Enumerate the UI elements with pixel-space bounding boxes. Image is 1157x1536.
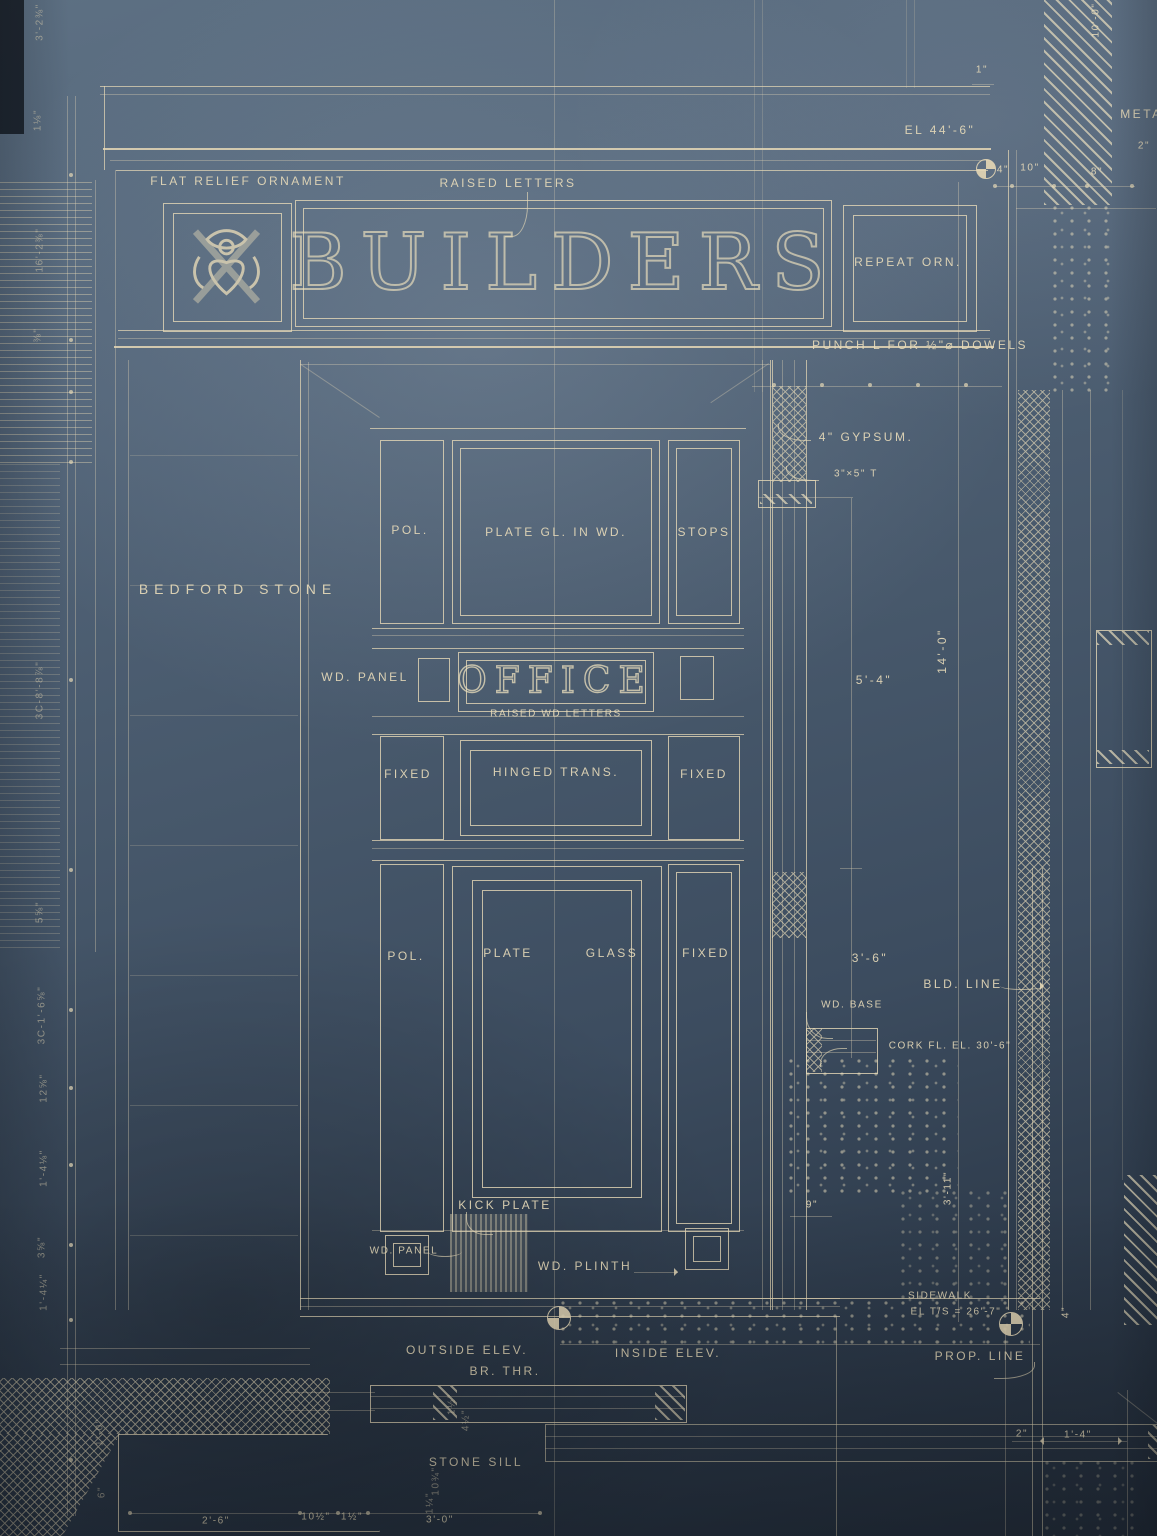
dim-tick	[69, 1086, 73, 1090]
margin-dim: 16'-2⅜"	[35, 227, 46, 272]
outside-elev-label: OUTSIDE ELEV.	[406, 1343, 528, 1357]
dim-tick	[69, 338, 73, 342]
dim-line	[995, 186, 1135, 187]
floor-bar-line	[545, 1448, 1157, 1449]
connector-line	[285, 1392, 375, 1393]
fixed-right-label: FIXED	[680, 767, 728, 781]
wd-panel-label: WD. PANEL	[321, 670, 409, 684]
kick-plate-label: KICK PLATE	[458, 1198, 551, 1212]
margin-dim: 3⅝"	[37, 1236, 48, 1258]
facade-return-line	[1008, 150, 1009, 1310]
dim-2in-bottom-label: 2"	[1016, 1429, 1028, 1440]
margin-dim: 5⅝"	[35, 901, 46, 923]
t3x5-label: 3"×5" T	[834, 469, 878, 480]
threshold-end-hatch	[655, 1386, 685, 1420]
dim-1h-rot-label: 1½"	[447, 1393, 458, 1415]
pol-upper-label: POL.	[391, 523, 428, 537]
dim-tick	[69, 1243, 73, 1247]
metal-label: METAL	[1120, 107, 1157, 121]
threshold-bar	[370, 1385, 687, 1423]
glass-line	[1090, 390, 1091, 1310]
wall-line	[95, 180, 96, 952]
cork-floor-label: CORK FL. EL. 30'-6"	[889, 1041, 1012, 1052]
fixed-pane	[380, 736, 444, 840]
office-sign-text: OFFICE	[457, 661, 653, 702]
plinth-square-inner	[693, 1236, 721, 1262]
dim-line-right-bottom	[1012, 1441, 1127, 1442]
side-light	[380, 864, 444, 1232]
builders-sign-text: BUILDERS	[289, 218, 838, 308]
margin-dim: 1⅛"	[33, 109, 44, 131]
sidewalk-datum-dot	[999, 1312, 1023, 1336]
stops-label: STOPS	[678, 525, 731, 539]
anchor-dot	[868, 383, 872, 387]
sidewalk-el-label: EL T/S = 26'-7"	[911, 1307, 1002, 1318]
stone-joint	[130, 715, 298, 716]
dim-tick	[69, 173, 73, 177]
sill-block-hatch	[760, 494, 812, 504]
floor-bar-end-hatch	[1148, 1425, 1157, 1459]
stone-joint	[130, 1235, 298, 1236]
gypsum-label: 4" GYPSUM.	[819, 430, 914, 444]
margin-dim: ⅜"	[33, 327, 44, 342]
stone-joint	[130, 455, 298, 456]
rail-line	[372, 848, 744, 849]
blocking-hatch	[772, 872, 806, 938]
punch-note-label: PUNCH L FOR ½"⌀ DOWELS	[812, 338, 1028, 352]
dim-tick	[336, 1511, 340, 1515]
dim-9in-label: 9"	[806, 1200, 818, 1211]
head-line	[300, 364, 770, 365]
threshold-line	[370, 1396, 685, 1397]
dim-tick	[69, 1008, 73, 1012]
dim-4-rot-label: 4"	[1061, 1306, 1072, 1318]
arrowhead	[1118, 1437, 1126, 1445]
dim-tick	[538, 1511, 542, 1515]
anchor-dot	[916, 383, 920, 387]
stone-joint	[130, 1105, 298, 1106]
hinged-transom-inner	[470, 750, 642, 826]
brick-course-texture	[0, 464, 60, 954]
pier-line	[115, 170, 116, 1310]
br-thr-label: BR. THR.	[469, 1364, 540, 1378]
stone-sill-label: STONE SILL	[429, 1455, 523, 1469]
rail-line	[372, 734, 744, 735]
dim-tick	[366, 1511, 370, 1515]
fixed-left-label: FIXED	[384, 767, 432, 781]
anchor-dot	[964, 383, 968, 387]
wd-panel-bottom-label: WD. PANEL	[370, 1246, 439, 1257]
wood-panel-square	[680, 656, 714, 700]
masonry-stipple	[1052, 205, 1114, 395]
concrete-stipple	[900, 1190, 1020, 1302]
rail-line	[372, 860, 744, 861]
anchor-dot	[772, 383, 776, 387]
cornice-line	[110, 160, 990, 161]
brick-course-texture	[0, 182, 92, 464]
wall-line	[914, 0, 915, 88]
dim-14-0-label: 14'-0"	[935, 628, 949, 674]
elevation-datum-dot	[976, 159, 996, 179]
dim-tick	[1052, 184, 1056, 188]
side-light-inner	[676, 872, 732, 1224]
wd-plinth-label: WD. PLINTH	[538, 1259, 632, 1273]
fold-crease	[754, 0, 755, 392]
dim-line-14-0	[958, 182, 959, 1322]
door-leaf-inner	[482, 890, 632, 1188]
dim-5-4-label: 5'-4"	[856, 673, 892, 687]
concrete-stipple	[788, 1058, 958, 1198]
fill-stipple	[1044, 1460, 1144, 1536]
hinged-trans-label: HINGED TRANS.	[493, 765, 619, 779]
raised-wd-letters-label: RAISED WD LETTERS	[490, 709, 622, 720]
cornice-line	[100, 94, 990, 95]
dim-line-bottom	[130, 1513, 540, 1514]
sill-line	[60, 1364, 310, 1365]
dim-tick	[128, 1511, 132, 1515]
mullion-detail-hatch	[1097, 631, 1149, 645]
dim-tick	[69, 1318, 73, 1322]
plate-gl-label: PLATE GL. IN WD.	[485, 525, 627, 539]
inside-elev-label: INSIDE ELEV.	[615, 1346, 721, 1360]
rail-line	[372, 648, 744, 649]
jamb-line	[300, 360, 301, 1310]
curb-hatch	[1124, 1175, 1157, 1325]
dim-2in-label: 2"	[1138, 141, 1150, 152]
dim-line	[67, 96, 68, 1516]
glass-label: GLASS	[586, 946, 639, 960]
dim-1in-label: 1"	[976, 65, 988, 76]
dim-line-5-4	[851, 498, 852, 1058]
sheet-edge-shadow	[0, 0, 24, 134]
dim-tick	[69, 460, 73, 464]
sidewalk-label: SIDEWALK	[908, 1291, 972, 1302]
head-line	[370, 428, 746, 429]
dim-9-line	[790, 1216, 832, 1217]
dim-3-6-label: 3'-6"	[852, 951, 888, 965]
arrowhead	[674, 1268, 682, 1276]
leader-line	[634, 1272, 678, 1273]
dim-6-rot-label: 6"	[97, 1486, 108, 1498]
mullion-detail	[1096, 630, 1152, 768]
dim-tick	[993, 184, 997, 188]
relief-ornament-motif	[178, 218, 275, 315]
dim-ext	[758, 497, 853, 498]
cornice-line	[100, 86, 990, 87]
dim-1-4-label: 1'-4"	[1064, 1430, 1092, 1441]
rail-line	[372, 840, 744, 841]
reveal-diagonal	[300, 364, 379, 418]
dim-tick	[1130, 184, 1134, 188]
sidewalk-line	[560, 1344, 1040, 1345]
foundation-hatch	[0, 1378, 330, 1434]
plate-label: PLATE	[483, 946, 533, 960]
wd-base-label: WD. BASE	[821, 1000, 883, 1011]
rail-line	[372, 1230, 744, 1231]
blueprint-sheet: FLAT RELIEF ORNAMENT RAISED LETTERS EL 4…	[0, 0, 1157, 1536]
dim-tick	[69, 390, 73, 394]
facade-return-line	[1016, 150, 1017, 1310]
pol-lower-label: POL.	[387, 949, 424, 963]
fixed-bottom-label: FIXED	[682, 946, 730, 960]
stone-joint	[130, 975, 298, 976]
dim-10in-label: 10"	[1020, 163, 1039, 174]
prop-line-leader	[994, 1362, 1035, 1379]
dim-10ft-label: 10'-0"	[1091, 2, 1102, 37]
section-line	[1016, 208, 1156, 209]
reveal-diagonal	[710, 363, 769, 403]
dim-4h-rot-label: 4½"	[461, 1409, 472, 1431]
dim-8in-label: 8"	[1091, 167, 1103, 178]
mullion-detail-hatch	[1097, 750, 1149, 764]
pier-line	[128, 360, 129, 1310]
arrowhead	[1036, 1437, 1044, 1445]
threshold-line	[370, 1408, 685, 1409]
margin-dim: 1'-4¼"	[39, 1273, 50, 1311]
bld-line-label: BLD. LINE	[923, 977, 1002, 991]
wall-crosshatch	[1018, 390, 1050, 1310]
cornice-line	[103, 148, 991, 150]
dim-tick	[69, 1163, 73, 1167]
dim-line	[75, 96, 76, 1516]
margin-dim: 3C-8'-8⅞"	[35, 661, 46, 720]
dim-tick	[1085, 184, 1089, 188]
dim-10h-label: 10½"	[301, 1512, 330, 1523]
dim-tick	[69, 868, 73, 872]
raised-letters-label: RAISED LETTERS	[439, 176, 576, 190]
rail-line	[372, 628, 744, 629]
elevation-divider	[836, 1316, 837, 1536]
slope-line	[1117, 1392, 1157, 1425]
el-44-6-label: EL 44'-6"	[905, 123, 976, 137]
dim-1-0-rot-label: 1'-0"	[95, 1418, 106, 1446]
anchor-dot	[820, 383, 824, 387]
stone-joint	[130, 845, 298, 846]
margin-dim: 3'-2⅜"	[35, 3, 46, 41]
dim-3-0-label: 3'-0"	[426, 1515, 454, 1526]
cornice-end	[104, 86, 105, 170]
margin-dim: 3C-1'-6⅝"	[37, 986, 48, 1045]
prop-line-label: PROP. LINE	[935, 1349, 1026, 1363]
connector-line	[285, 1410, 375, 1411]
glass-line	[1122, 390, 1123, 1180]
cornice-line	[116, 170, 988, 171]
bedford-stone-label: BEDFORD STONE	[139, 581, 337, 597]
dim-1h-label: 1½"	[341, 1512, 363, 1523]
dim-3-11-label: 3'-11"	[943, 1171, 954, 1205]
jamb-line	[308, 362, 309, 1310]
repeat-orn-label: REPEAT ORN.	[854, 255, 962, 269]
rail-line	[372, 635, 744, 636]
dim-1q-rot-label: 1¼"	[425, 1492, 436, 1514]
dim-2-6-label: 2'-6"	[202, 1516, 230, 1527]
wood-panel-square	[418, 658, 450, 702]
wall-line	[906, 0, 907, 88]
glass-line	[1062, 390, 1063, 1310]
margin-dim: 1'-4⅛"	[39, 1149, 50, 1187]
dim-tick	[69, 678, 73, 682]
flat-relief-label: FLAT RELIEF ORNAMENT	[150, 174, 346, 188]
dim-tick	[1010, 184, 1014, 188]
fold-crease	[762, 0, 763, 392]
margin-dim: 12⅝"	[39, 1073, 50, 1102]
dim-4in-label: 4"	[997, 165, 1009, 176]
sill-line	[60, 1348, 310, 1349]
fixed-pane	[668, 736, 740, 840]
dim-line-1in	[972, 84, 994, 85]
